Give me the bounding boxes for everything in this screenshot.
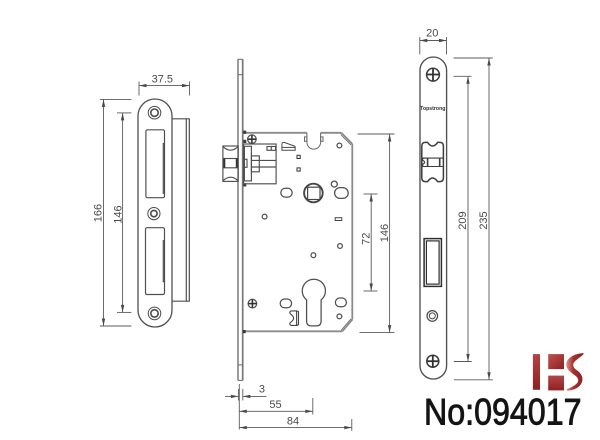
svg-text:84: 84 xyxy=(287,415,299,427)
svg-text:37.5: 37.5 xyxy=(152,73,173,85)
svg-text:209: 209 xyxy=(457,211,469,229)
svg-text:72: 72 xyxy=(361,233,373,245)
svg-text:166: 166 xyxy=(93,204,105,222)
svg-text:20: 20 xyxy=(426,28,438,40)
svg-text:3: 3 xyxy=(259,384,265,396)
svg-text:Topstrong: Topstrong xyxy=(420,106,445,112)
svg-text:55: 55 xyxy=(269,399,281,411)
svg-text:146: 146 xyxy=(379,224,391,242)
svg-text:235: 235 xyxy=(478,211,490,229)
svg-text:146: 146 xyxy=(112,205,124,223)
svg-text:No:094017: No:094017 xyxy=(424,392,582,433)
